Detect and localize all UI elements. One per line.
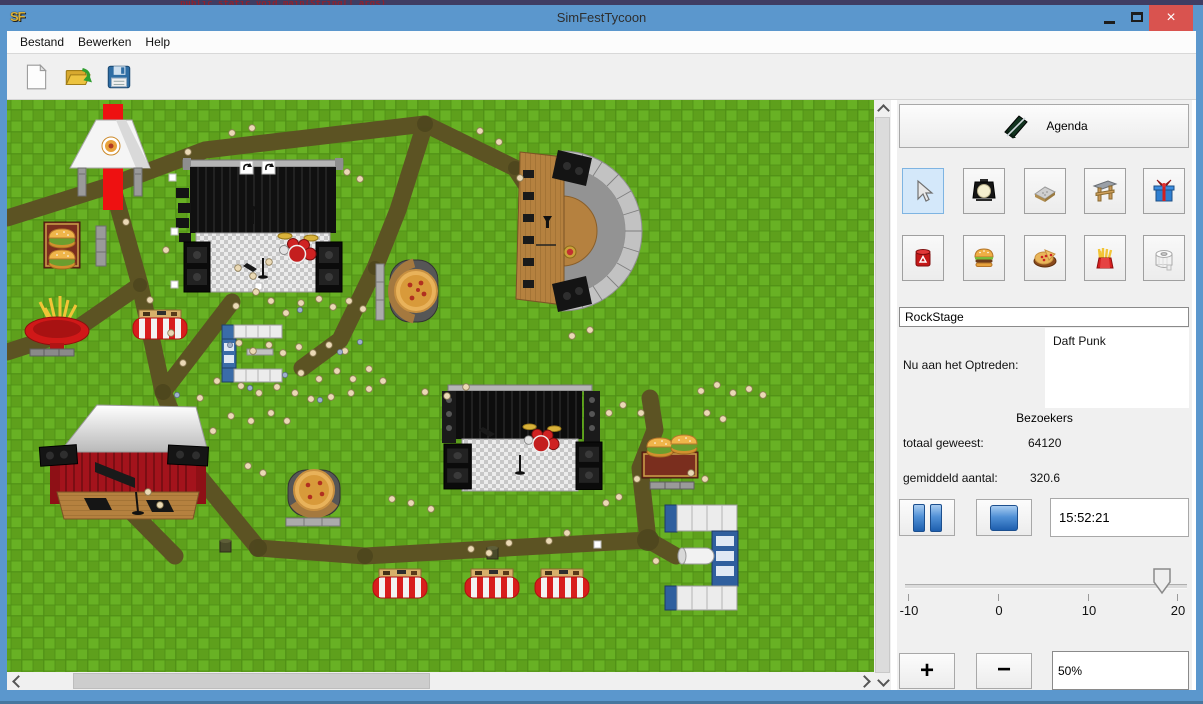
- toilet-paper-icon: [1150, 244, 1178, 272]
- stop-icon: [990, 505, 1018, 531]
- cursor-icon: [909, 177, 937, 205]
- scroll-down-button[interactable]: [874, 673, 891, 690]
- spotlight-icon: [970, 177, 998, 205]
- horizontal-scrollbar-thumb[interactable]: [73, 673, 430, 689]
- zoom-out-button[interactable]: −: [976, 653, 1032, 689]
- close-icon: ×: [1166, 9, 1175, 26]
- scroll-left-button[interactable]: [7, 672, 25, 690]
- pause-icon: [913, 504, 925, 532]
- speed-slider-thumb[interactable]: [1153, 568, 1171, 595]
- tool-select-cursor[interactable]: [902, 168, 944, 214]
- clock-display: 15:52:21: [1050, 498, 1189, 537]
- maximize-button[interactable]: [1126, 5, 1150, 31]
- toolbar: [7, 54, 1196, 100]
- visitors-total-value: 64120: [1028, 436, 1061, 450]
- pause-icon: [930, 504, 942, 532]
- visitors-total-label: totaal geweest:: [903, 436, 984, 450]
- vertical-scrollbar-thumb[interactable]: [875, 117, 890, 673]
- slider-tick: [1177, 594, 1178, 601]
- new-file-button[interactable]: [21, 62, 51, 92]
- agenda-label: Agenda: [1046, 119, 1087, 133]
- sidebar: Agenda: [897, 100, 1192, 690]
- tool-stage-gate[interactable]: [1084, 168, 1126, 214]
- chevron-left-icon: [12, 675, 25, 688]
- pizza-table-2[interactable]: [286, 470, 340, 526]
- window-border-left: [0, 31, 7, 690]
- slider-label-max: 20: [1171, 603, 1185, 618]
- chevron-right-icon: [858, 675, 871, 688]
- menu-help[interactable]: Help: [138, 32, 177, 52]
- path-tile-icon: [1031, 177, 1059, 205]
- center-stage[interactable]: [442, 385, 602, 491]
- tool-spotlight[interactable]: [963, 168, 1005, 214]
- tool-toilet[interactable]: [1143, 235, 1185, 281]
- close-button[interactable]: ×: [1149, 5, 1193, 31]
- tool-gift-shop[interactable]: [1143, 168, 1185, 214]
- chevron-up-icon: [877, 104, 890, 117]
- market-stall[interactable]: [133, 310, 187, 339]
- chevron-down-icon: [877, 674, 890, 687]
- clock-value: 15:52:21: [1059, 510, 1110, 525]
- now-performing-artist: Daft Punk: [1053, 334, 1106, 348]
- window-title: SimFestTycoon: [557, 10, 647, 25]
- minimize-icon: [1104, 21, 1115, 24]
- slider-label-min: -10: [900, 603, 919, 618]
- barrier-stall-2[interactable]: [465, 569, 519, 598]
- new-file-icon: [21, 62, 51, 92]
- tool-pizza-stand[interactable]: [1024, 235, 1066, 281]
- agenda-button[interactable]: Agenda: [899, 104, 1189, 148]
- speed-slider-track[interactable]: [905, 584, 1187, 589]
- trash-can-icon: [909, 244, 937, 272]
- visitors-avg-label: gemiddeld aantal:: [903, 471, 998, 485]
- window-border-bottom: [0, 690, 1203, 701]
- horizontal-scrollbar[interactable]: [7, 672, 874, 690]
- menu-bewerken[interactable]: Bewerken: [71, 32, 138, 52]
- vertical-scrollbar[interactable]: [874, 100, 891, 690]
- stage-name-input[interactable]: [899, 307, 1189, 327]
- maximize-icon: [1131, 12, 1143, 22]
- menu-bar: Bestand Bewerken Help: [7, 31, 1196, 54]
- visitors-avg-value: 320.6: [1030, 471, 1060, 485]
- save-button[interactable]: [104, 62, 134, 92]
- agenda-book-icon: [1000, 111, 1030, 141]
- slider-label-10: 10: [1082, 603, 1096, 618]
- zoom-level-field[interactable]: [1052, 651, 1189, 690]
- festival-map-canvas[interactable]: [7, 100, 874, 672]
- open-file-icon: [62, 62, 92, 92]
- stop-button[interactable]: [976, 499, 1032, 536]
- pause-button[interactable]: [899, 499, 955, 536]
- tool-fries-stand[interactable]: [1084, 235, 1126, 281]
- visitors-header: Bezoekers: [897, 411, 1192, 425]
- scroll-right-button[interactable]: [856, 672, 874, 690]
- menu-bestand[interactable]: Bestand: [13, 32, 71, 52]
- gift-icon: [1150, 177, 1178, 205]
- stage-gate-icon: [1091, 177, 1119, 205]
- window-border-right: [1196, 31, 1203, 690]
- scroll-up-button[interactable]: [874, 100, 891, 117]
- barrier-stall-1[interactable]: [373, 569, 427, 598]
- now-performing-label: Nu aan het Optreden:: [903, 358, 1018, 372]
- slider-tick: [998, 594, 999, 601]
- minimize-button[interactable]: [1098, 5, 1122, 31]
- burger-icon: [970, 244, 998, 272]
- application-window: { "window": { "title": "SimFestTycoon", …: [0, 0, 1203, 704]
- slider-label-0: 0: [995, 603, 1002, 618]
- tool-burger-stand[interactable]: [963, 235, 1005, 281]
- slider-tick: [1088, 594, 1089, 601]
- pizza-icon: [1031, 244, 1059, 272]
- tool-trash-can[interactable]: [902, 235, 944, 281]
- main-stage[interactable]: [176, 158, 343, 292]
- now-performing-box: Daft Punk: [1045, 328, 1189, 408]
- app-icon: SF: [10, 9, 25, 24]
- zoom-in-button[interactable]: +: [899, 653, 955, 689]
- barrier-stall-3[interactable]: [535, 569, 589, 598]
- slider-tick: [908, 594, 909, 601]
- tool-path-tile[interactable]: [1024, 168, 1066, 214]
- trash-bin[interactable]: [220, 539, 231, 552]
- save-icon: [104, 62, 134, 92]
- burger-stand-left[interactable]: [44, 222, 106, 269]
- fries-icon: [1091, 244, 1119, 272]
- open-file-button[interactable]: [62, 62, 92, 92]
